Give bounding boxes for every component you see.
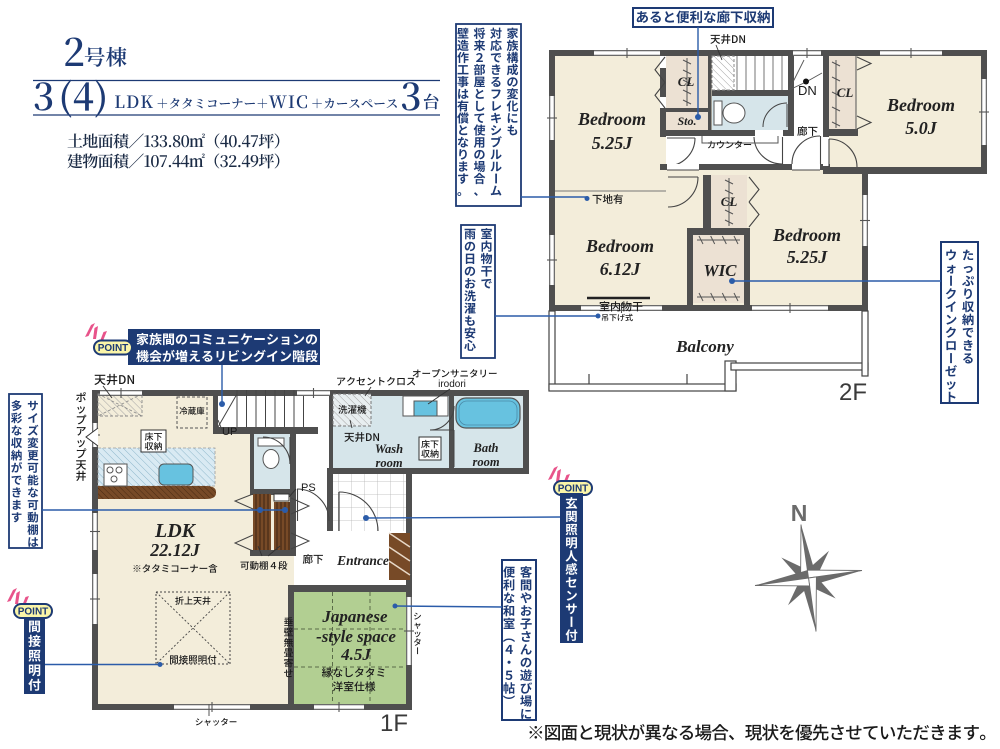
svg-text:Wash: Wash	[375, 442, 403, 456]
svg-text:Bedroom: Bedroom	[577, 109, 646, 129]
svg-text:N: N	[791, 500, 808, 526]
svg-text:CL: CL	[678, 74, 695, 89]
svg-text:5.25J: 5.25J	[592, 133, 634, 153]
svg-text:-style space: -style space	[316, 627, 396, 646]
svg-text:room: room	[375, 456, 402, 470]
svg-text:Japanese: Japanese	[321, 607, 388, 626]
svg-text:DN: DN	[798, 83, 817, 98]
svg-text:CL: CL	[837, 85, 854, 100]
svg-text:POINT: POINT	[558, 484, 589, 495]
svg-text:Sto.: Sto.	[677, 114, 696, 128]
svg-text:LDK: LDK	[154, 520, 197, 542]
svg-text:5.0J: 5.0J	[905, 118, 938, 138]
svg-text:Entrance: Entrance	[336, 553, 389, 568]
svg-text:POINT: POINT	[18, 607, 49, 618]
svg-text:Bedroom: Bedroom	[585, 236, 654, 256]
svg-text:Balcony: Balcony	[675, 337, 734, 356]
svg-text:PS: PS	[301, 482, 316, 494]
svg-text:CL: CL	[721, 194, 738, 209]
svg-text:WIC: WIC	[703, 261, 737, 280]
svg-text:room: room	[472, 455, 499, 469]
svg-text:5.25J: 5.25J	[787, 247, 829, 267]
svg-text:irodori: irodori	[438, 379, 466, 390]
svg-text:POINT: POINT	[98, 343, 129, 354]
svg-text:22.12J: 22.12J	[149, 540, 201, 560]
svg-text:Bath: Bath	[472, 441, 498, 455]
svg-text:6.12J: 6.12J	[600, 259, 642, 279]
svg-text:1F: 1F	[380, 710, 408, 737]
svg-text:UP: UP	[222, 426, 237, 438]
svg-text:4.5J: 4.5J	[340, 645, 371, 664]
svg-text:Bedroom: Bedroom	[886, 95, 955, 115]
svg-text:2F: 2F	[839, 379, 867, 406]
svg-text:Bedroom: Bedroom	[772, 225, 841, 245]
